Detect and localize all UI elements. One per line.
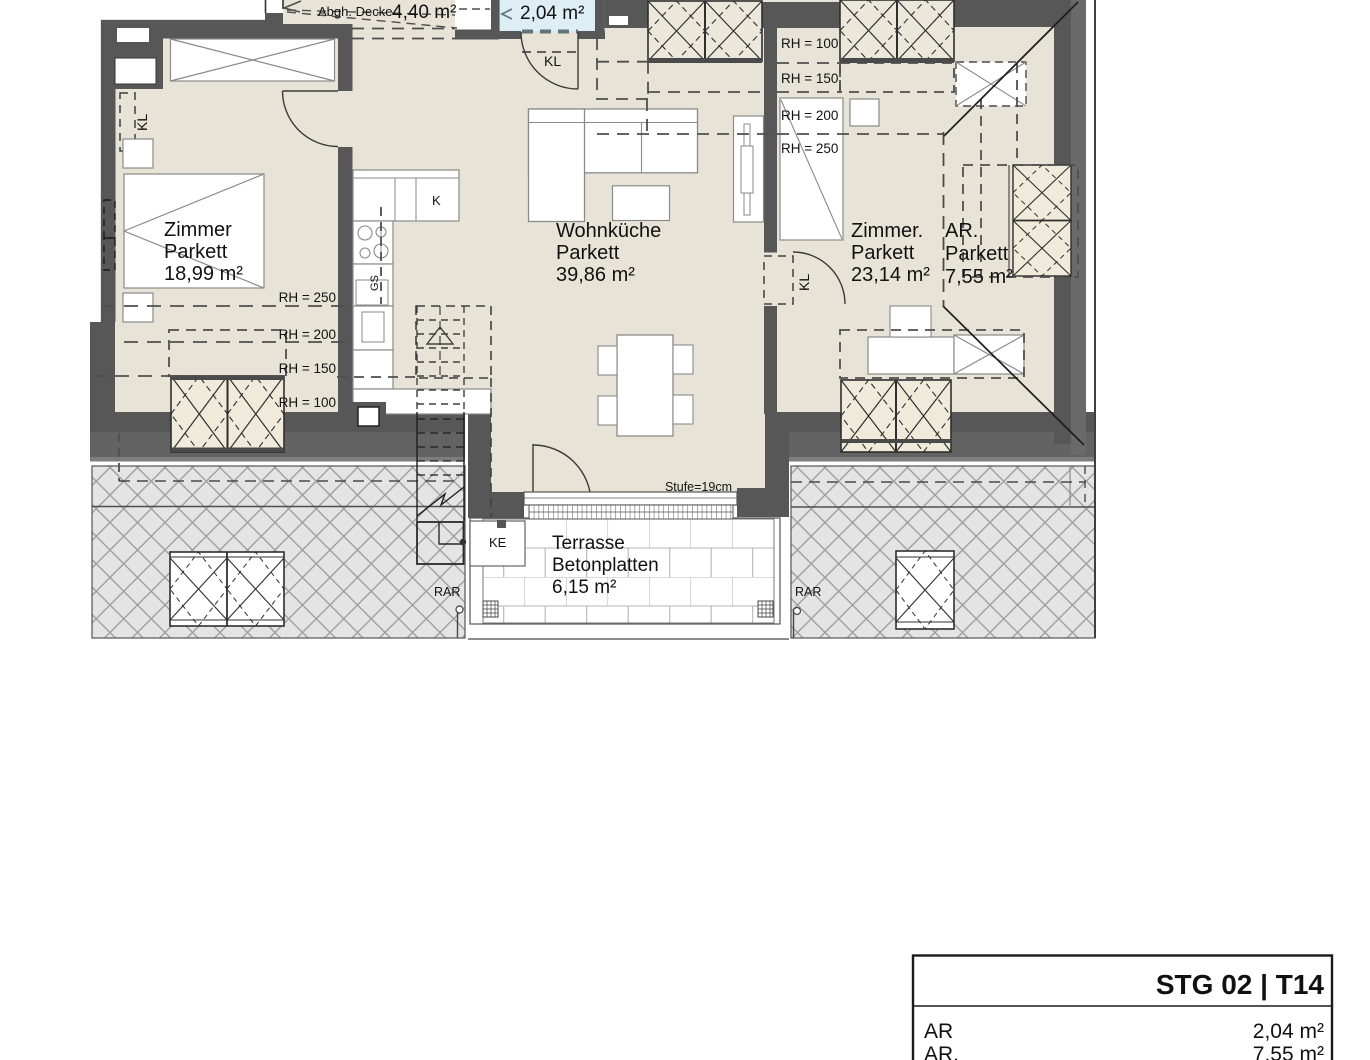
svg-text:RH = 150: RH = 150: [279, 361, 336, 376]
svg-text:STG 02 | T14: STG 02 | T14: [1156, 969, 1325, 1000]
svg-text:4,40 m²: 4,40 m²: [392, 2, 456, 23]
svg-text:Terrasse: Terrasse: [552, 533, 625, 554]
svg-text:RAR: RAR: [795, 585, 821, 599]
svg-text:RH = 200: RH = 200: [781, 108, 838, 123]
svg-text:Parkett: Parkett: [851, 242, 915, 264]
svg-text:K: K: [432, 193, 441, 208]
svg-text:RH = 200: RH = 200: [279, 327, 336, 342]
svg-text:KL: KL: [796, 274, 812, 291]
svg-text:2,04 m²: 2,04 m²: [1253, 1020, 1324, 1043]
svg-text:Parkett: Parkett: [164, 241, 228, 263]
svg-text:RH = 100: RH = 100: [781, 36, 838, 51]
svg-text:18,99 m²: 18,99 m²: [164, 263, 243, 285]
svg-text:KL: KL: [134, 114, 150, 131]
svg-text:GS: GS: [369, 275, 381, 291]
svg-text:6,15 m²: 6,15 m²: [552, 577, 616, 598]
svg-text:Zimmer.: Zimmer.: [851, 220, 923, 242]
svg-text:Wohnküche: Wohnküche: [556, 220, 661, 242]
svg-text:AR.: AR.: [945, 220, 978, 242]
svg-text:7,55 m²: 7,55 m²: [1253, 1043, 1324, 1060]
svg-text:RAR: RAR: [434, 585, 460, 599]
svg-text:RH = 100: RH = 100: [279, 395, 336, 410]
svg-text:Betonplatten: Betonplatten: [552, 555, 659, 576]
svg-text:RH = 150: RH = 150: [781, 71, 838, 86]
svg-text:2,04 m²: 2,04 m²: [520, 3, 584, 24]
svg-text:AR: AR: [924, 1020, 953, 1043]
svg-text:RH = 250: RH = 250: [781, 141, 838, 156]
svg-text:AR.: AR.: [924, 1043, 959, 1060]
svg-text:Zimmer: Zimmer: [164, 219, 232, 241]
svg-text:KE: KE: [489, 535, 507, 550]
svg-text:Parkett: Parkett: [556, 242, 620, 264]
svg-text:Parkett: Parkett: [945, 243, 1009, 265]
svg-text:RH = 250: RH = 250: [279, 290, 336, 305]
svg-text:Abgh. Decke: Abgh. Decke: [318, 4, 392, 19]
svg-text:7,55 m²: 7,55 m²: [945, 266, 1013, 288]
svg-text:39,86 m²: 39,86 m²: [556, 264, 635, 286]
svg-text:Stufe=19cm: Stufe=19cm: [665, 480, 732, 494]
svg-text:KL: KL: [544, 53, 561, 69]
svg-text:23,14 m²: 23,14 m²: [851, 264, 930, 286]
